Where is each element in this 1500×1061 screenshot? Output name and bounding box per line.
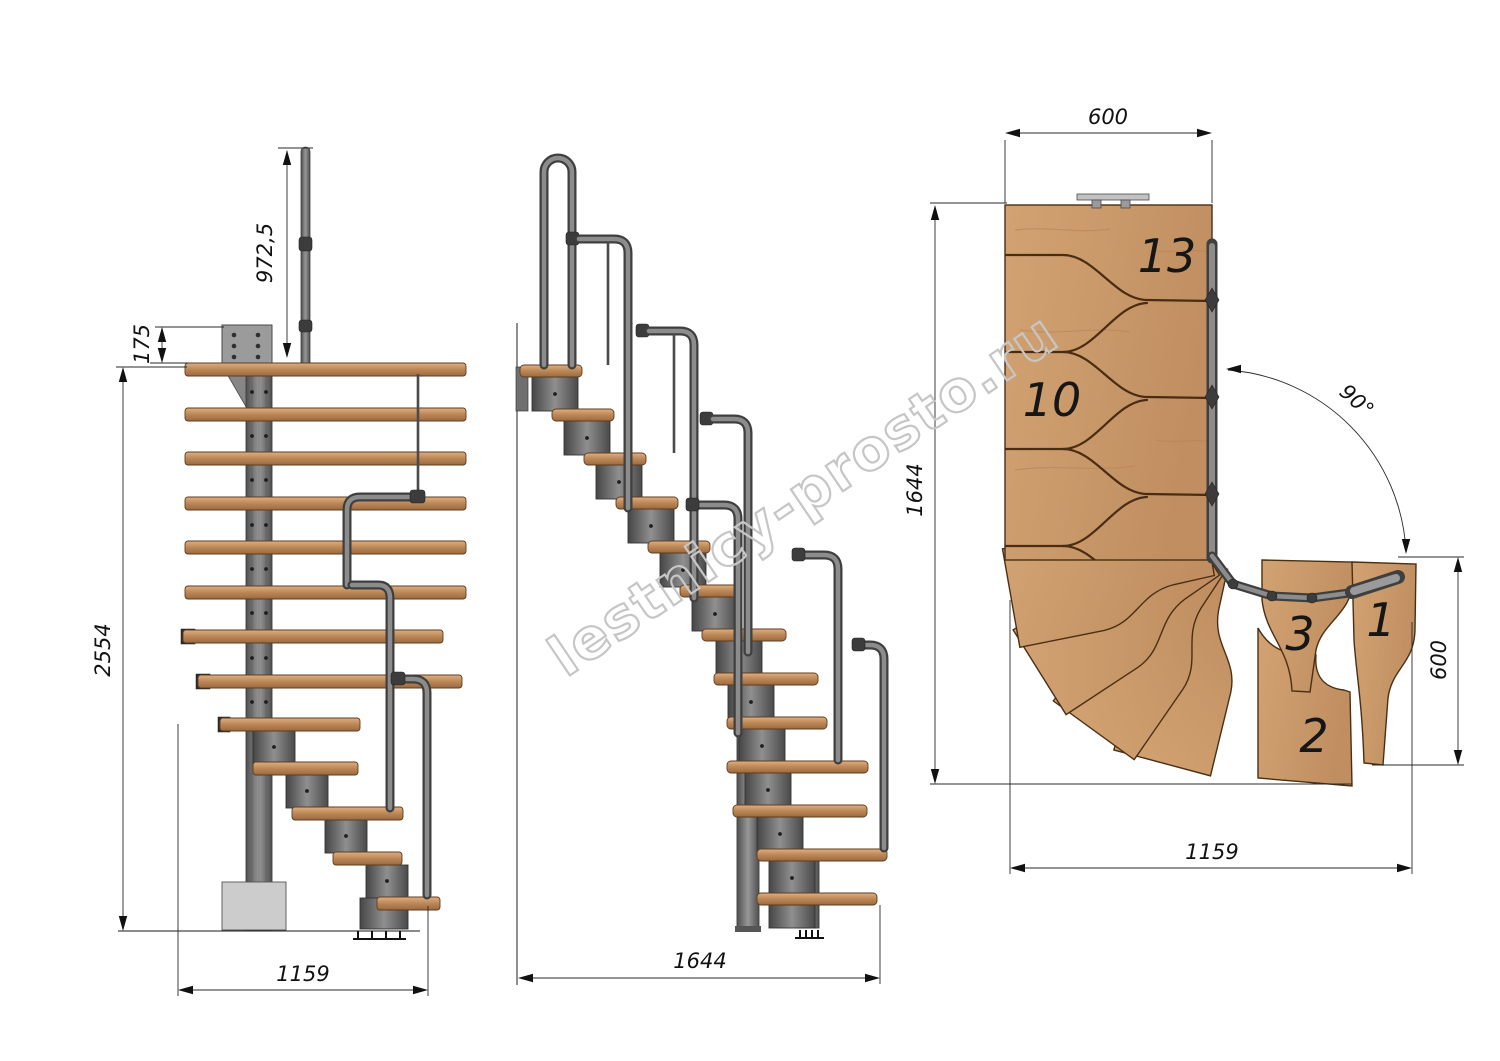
plan-view: 13 10 3 1 2 90° 600 1644	[903, 105, 1464, 874]
side-main-post-base	[735, 926, 761, 932]
plan-handrail	[1205, 244, 1398, 603]
dim-plan-turn-angle: 90°	[1226, 365, 1410, 554]
front-base-feet	[353, 931, 406, 939]
staircase-drawing: 972,5 175 2554 1159	[0, 0, 1500, 1061]
dim-label-90deg: 90°	[1335, 379, 1379, 422]
dim-label-1159-plan: 1159	[1185, 840, 1238, 864]
dim-label-175: 175	[130, 324, 154, 364]
tread-label-3: 3	[1285, 607, 1314, 661]
front-elevation-view: 972,5 175 2554 1159	[91, 147, 466, 996]
side-base-feet	[795, 930, 824, 938]
front-treads-upper	[181, 363, 466, 689]
dim-label-1644-side: 1644	[673, 949, 726, 973]
tread-label-13: 13	[1138, 229, 1197, 283]
dim-label-9725: 972,5	[253, 223, 277, 283]
drawing-canvas: 972,5 175 2554 1159	[0, 0, 1500, 1061]
tread-label-10: 10	[1023, 373, 1082, 427]
dim-label-600-right: 600	[1427, 640, 1451, 680]
dim-label-1159-front: 1159	[276, 962, 329, 986]
dim-plan-top-width: 600	[1005, 105, 1212, 203]
front-mounting-plate	[222, 325, 272, 363]
tread-label-2: 2	[1299, 709, 1328, 763]
dim-label-600-top: 600	[1088, 105, 1128, 129]
dim-front-plate-offset: 175	[130, 324, 224, 364]
dim-side-base-length: 1644	[518, 905, 880, 984]
tread-label-1: 1	[1366, 593, 1395, 647]
dim-front-total-height: 2554	[91, 367, 187, 931]
dim-label-1644-plan: 1644	[903, 463, 927, 516]
front-handrail-post	[299, 147, 312, 372]
dim-label-2554: 2554	[91, 623, 115, 676]
